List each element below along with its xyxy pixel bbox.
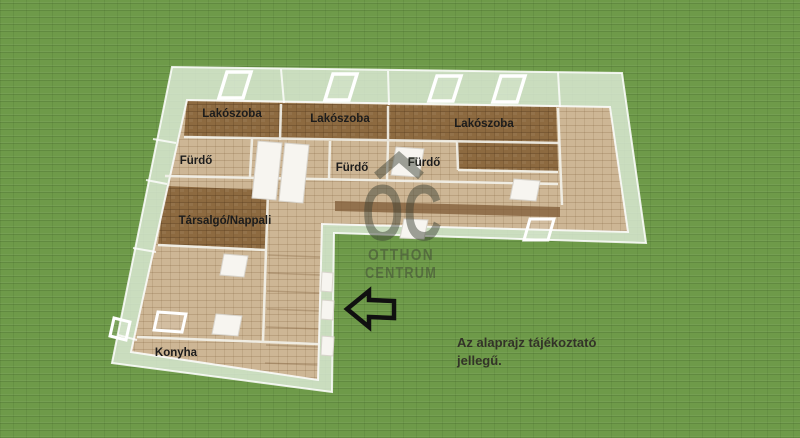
watermark-initials: OC bbox=[362, 168, 442, 257]
door-slab bbox=[510, 179, 540, 201]
room-label-lakoszoba-1: Lakószoba bbox=[202, 108, 262, 120]
door-slab bbox=[321, 336, 334, 356]
room-label-lakoszoba-2: Lakószoba bbox=[310, 113, 370, 125]
window-icon bbox=[524, 219, 554, 240]
room-lakoszoba-1-floor bbox=[184, 101, 281, 139]
window-icon bbox=[110, 318, 130, 340]
chimney-icon bbox=[409, 157, 417, 166]
watermark-line1: OTTHON bbox=[368, 247, 434, 264]
floor-plan-scene: Lakószoba Lakószoba Lakószoba Fürdő Fürd… bbox=[0, 0, 800, 438]
door-slab bbox=[321, 272, 333, 292]
disclaimer-line1: Az alaprajz tájékoztató bbox=[457, 335, 596, 350]
room-label-tarsalgo-nappali: Társalgó/Nappali bbox=[179, 215, 272, 227]
room-label-furdo-1: Fürdő bbox=[180, 155, 213, 167]
disclaimer-line2: jellegű. bbox=[456, 353, 502, 368]
room-label-konyha: Konyha bbox=[155, 347, 198, 359]
window-icon bbox=[154, 312, 186, 332]
door-slab bbox=[220, 254, 248, 277]
door-slab bbox=[321, 300, 334, 320]
watermark-logo: OC OTTHON CENTRUM bbox=[362, 157, 442, 282]
entrance-arrow-icon bbox=[347, 291, 394, 327]
watermark-line2: CENTRUM bbox=[365, 265, 437, 282]
floor-plan-drawing: Lakószoba Lakószoba Lakószoba Fürdő Fürd… bbox=[0, 0, 800, 438]
door-slab bbox=[212, 314, 242, 336]
room-label-lakoszoba-3: Lakószoba bbox=[454, 118, 514, 130]
